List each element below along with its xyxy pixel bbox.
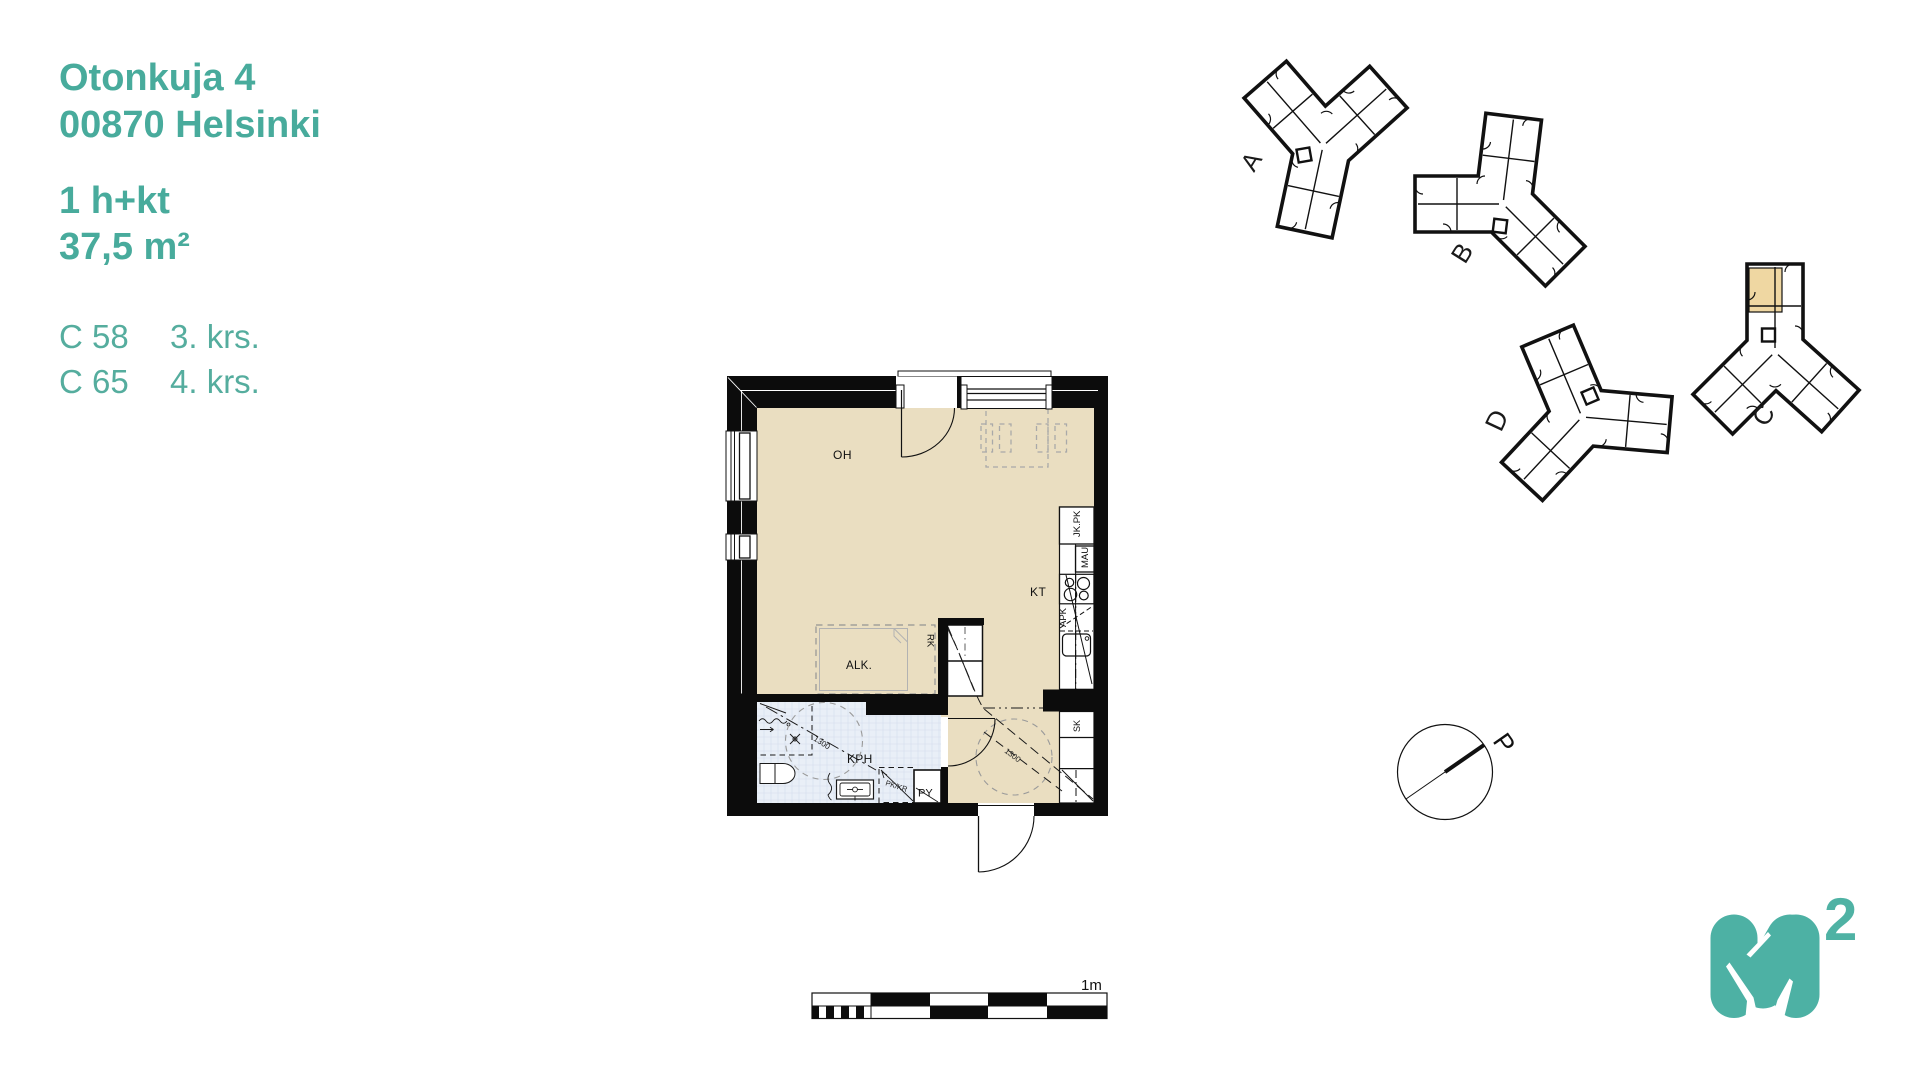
svg-text:C 65: C 65	[59, 363, 129, 400]
svg-text:1 h+kt: 1 h+kt	[59, 180, 170, 222]
svg-text:ALK.: ALK.	[846, 660, 872, 672]
svg-text:37,5 m²: 37,5 m²	[59, 226, 190, 268]
svg-text:SK: SK	[1072, 720, 1082, 732]
svg-text:4. krs.: 4. krs.	[170, 363, 260, 400]
svg-text:OH: OH	[833, 448, 852, 462]
svg-text:Otonkuja 4: Otonkuja 4	[59, 57, 255, 99]
svg-text:3. krs.: 3. krs.	[170, 318, 260, 355]
svg-text:2: 2	[1824, 886, 1857, 953]
svg-text:APK: APK	[1058, 607, 1069, 627]
svg-text:PY: PY	[918, 788, 933, 800]
svg-text:KT: KT	[1030, 585, 1047, 599]
svg-text:MAU: MAU	[1080, 547, 1091, 568]
svg-text:1m: 1m	[1081, 977, 1102, 994]
svg-text:C 58: C 58	[59, 318, 129, 355]
svg-text:RK: RK	[925, 634, 936, 648]
svg-text:00870 Helsinki: 00870 Helsinki	[59, 104, 321, 146]
svg-text:JK.PK: JK.PK	[1072, 510, 1083, 537]
